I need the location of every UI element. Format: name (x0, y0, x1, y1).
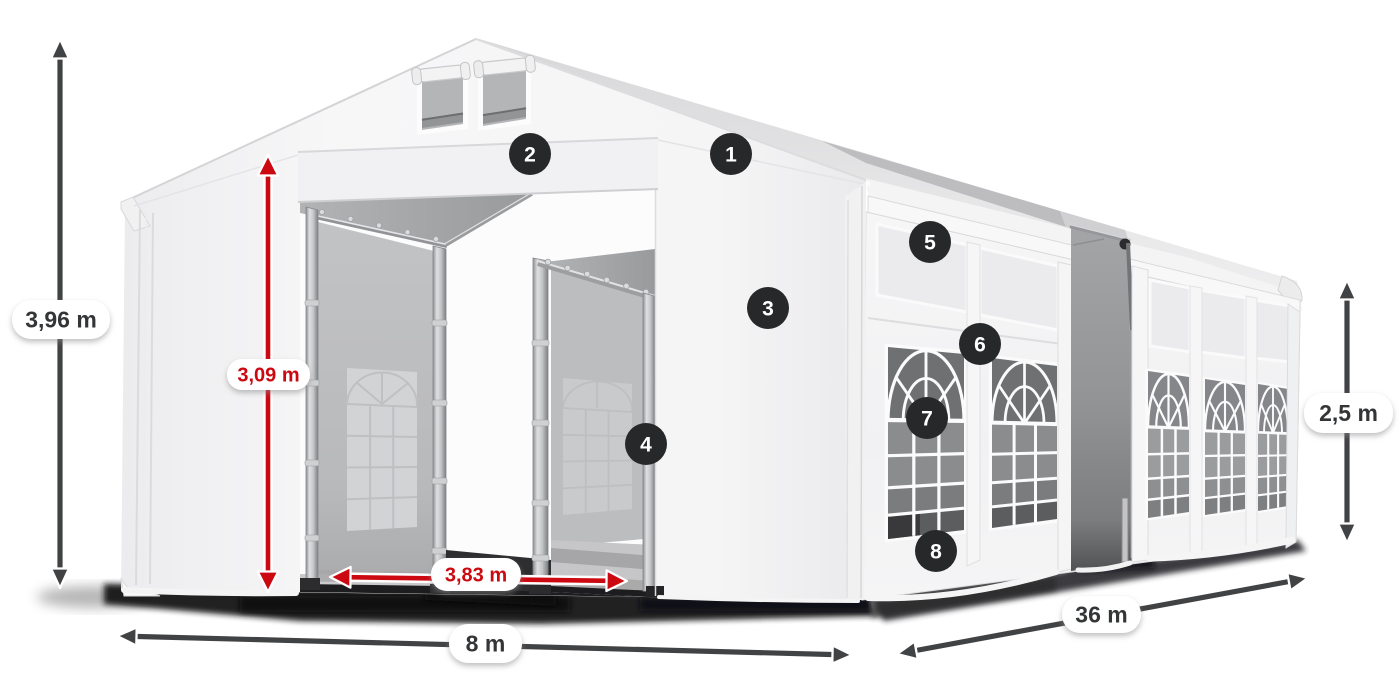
svg-text:7: 7 (921, 408, 933, 431)
svg-text:3,09 m: 3,09 m (237, 365, 299, 387)
svg-text:6: 6 (974, 334, 986, 357)
svg-text:3,83 m: 3,83 m (445, 565, 507, 587)
svg-text:5: 5 (924, 232, 936, 255)
svg-text:2,5 m: 2,5 m (1319, 400, 1378, 426)
svg-text:1: 1 (725, 144, 737, 167)
svg-text:4: 4 (640, 434, 652, 457)
svg-text:8: 8 (930, 541, 942, 564)
svg-text:2: 2 (524, 144, 536, 167)
svg-text:3: 3 (762, 298, 774, 321)
svg-text:3,96 m: 3,96 m (25, 307, 97, 333)
svg-text:36 m: 36 m (1075, 602, 1127, 628)
svg-text:8 m: 8 m (466, 631, 506, 657)
